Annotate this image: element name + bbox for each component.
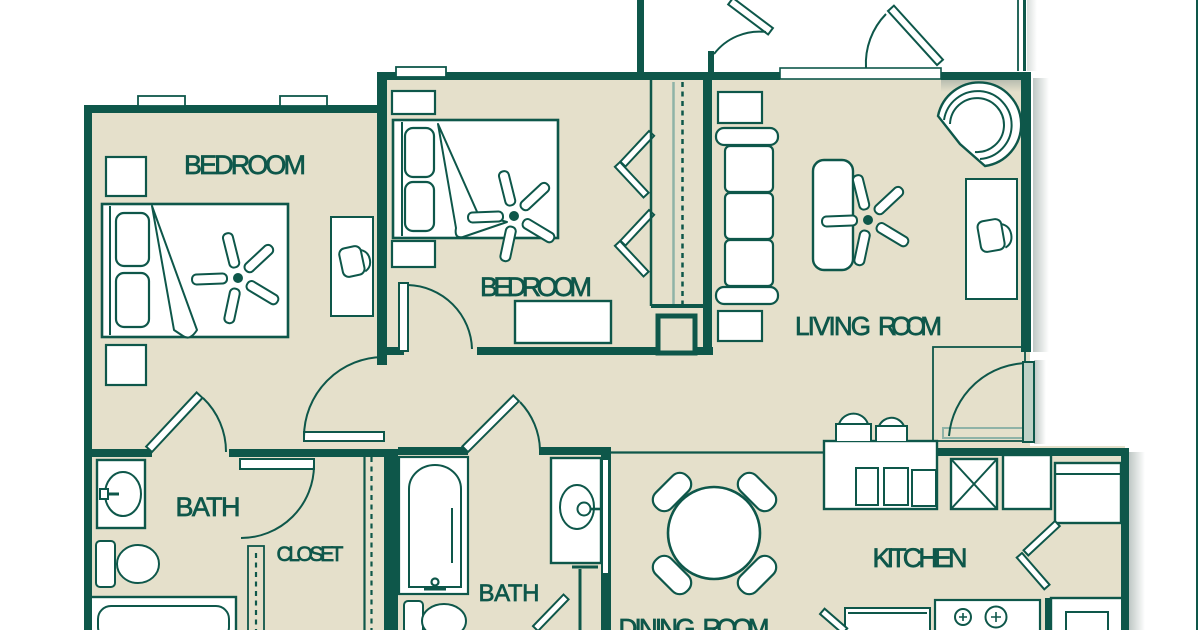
svg-text:BATH: BATH	[479, 580, 540, 607]
svg-text:LIVING: LIVING	[795, 311, 871, 341]
svg-text:KITCHEN: KITCHEN	[873, 543, 968, 573]
svg-text:BATH: BATH	[176, 492, 241, 522]
svg-text:ROOM: ROOM	[703, 613, 770, 630]
svg-text:BEDROOM: BEDROOM	[480, 272, 592, 302]
svg-text:DINING: DINING	[619, 613, 696, 630]
svg-text:CLOSET: CLOSET	[277, 543, 344, 566]
svg-text:ROOM: ROOM	[878, 311, 942, 341]
svg-text:BEDROOM: BEDROOM	[184, 150, 306, 180]
